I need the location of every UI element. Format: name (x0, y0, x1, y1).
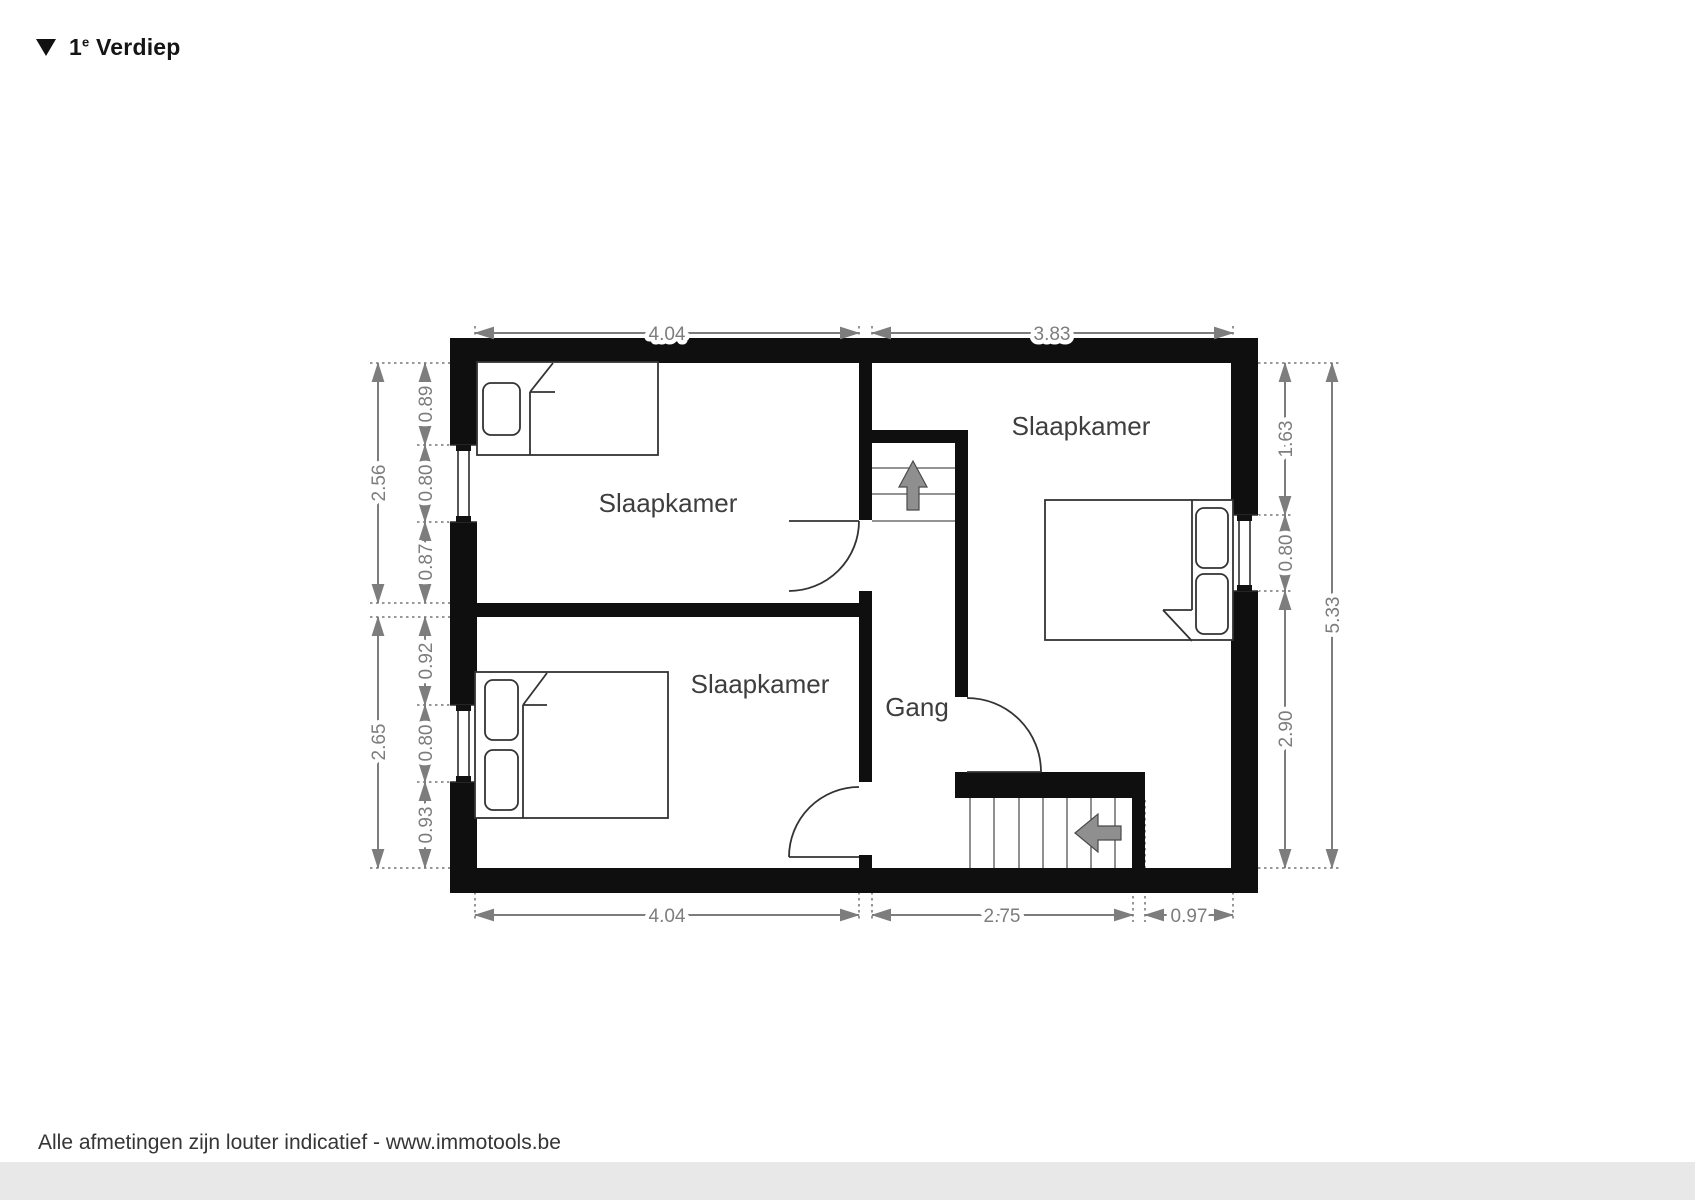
room-label-bedroom-bottom-left: Slaapkamer (691, 669, 830, 699)
dimension-label: 2.56 (369, 465, 390, 502)
wall-left-segment (450, 338, 477, 445)
footer-band (0, 1162, 1695, 1200)
dimension-label: 0.80 (416, 725, 437, 762)
room-label-bedroom-right: Slaapkamer (1012, 411, 1151, 441)
dimension-label: 5.33 (1323, 597, 1344, 634)
dimension-label: 0.92 (416, 643, 437, 680)
wall-center-stub (859, 855, 872, 868)
wall-stair-right (955, 430, 968, 697)
stairs-lower (970, 798, 1121, 868)
window-left-bottom (449, 705, 478, 782)
footer-disclaimer: Alle afmetingen zijn louter indicatief -… (38, 1131, 561, 1155)
dimension-label: 4.04 (649, 324, 686, 345)
room-label-hallway: Gang (885, 692, 949, 722)
dimension-label: 4.04 (649, 906, 686, 927)
wall-center-segment (859, 591, 872, 782)
dimension-label: 1.63 (1276, 421, 1297, 458)
wall-top (450, 338, 1258, 363)
dimension-label: 0.80 (1276, 535, 1297, 572)
wall-stair-bottom (955, 772, 1145, 798)
floor-plan: 4.04 3.83 4.04 2.75 0.97 2.56 2.65 0.89 … (0, 0, 1695, 1200)
dimension-label: 0.87 (416, 544, 437, 581)
dimension-label: 2.65 (369, 724, 390, 761)
dimension-label: 0.93 (416, 807, 437, 844)
dimension-label: 2.90 (1276, 711, 1297, 748)
wall-right-segment (1231, 338, 1258, 515)
bed-double-right (1045, 500, 1233, 641)
dimension-label: 3.83 (1034, 324, 1071, 345)
dimension-label: 0.89 (416, 386, 437, 423)
wall-bottom (450, 868, 1258, 893)
bed-single-top-left (477, 362, 658, 455)
stairs-down-arrow-icon (1075, 814, 1121, 852)
window-left-top (449, 445, 478, 522)
wall-stair-top (859, 430, 968, 443)
wall-stairwell-end (1132, 772, 1145, 868)
door-bedroom-bottom-left (789, 787, 859, 857)
wall-right-segment (1231, 591, 1258, 893)
bed-double-bottom-left (475, 672, 668, 818)
dimension-label: 2.75 (984, 906, 1021, 927)
door-bedroom-right (967, 698, 1041, 772)
stairs-upper (872, 461, 955, 521)
door-bedroom-top-left (789, 521, 859, 591)
wall-left-segment (450, 782, 477, 893)
dimension-label: 0.80 (416, 465, 437, 502)
wall-bedroom-divider (450, 603, 872, 617)
room-label-bedroom-top-left: Slaapkamer (599, 488, 738, 518)
dimension-label: 0.97 (1171, 906, 1208, 927)
window-right (1230, 515, 1259, 591)
